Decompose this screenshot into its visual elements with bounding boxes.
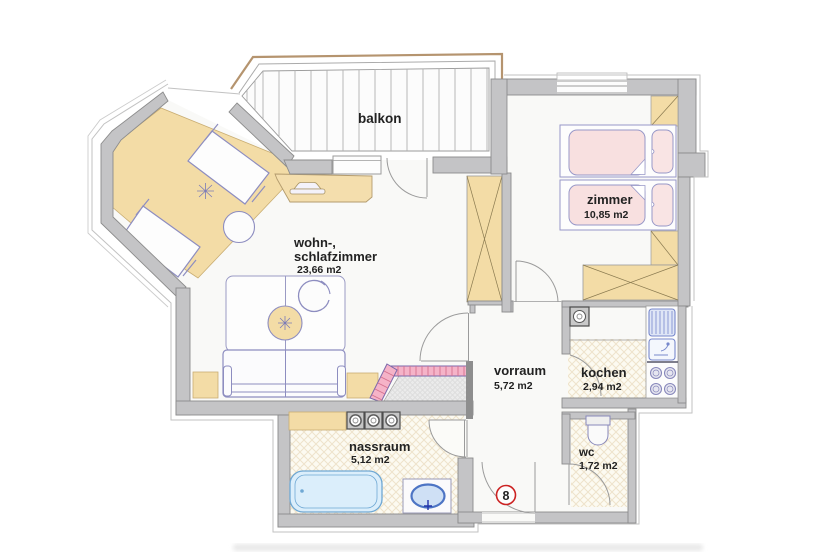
svg-text:5,12 m2: 5,12 m2	[351, 454, 390, 466]
svg-text:schlafzimmer: schlafzimmer	[294, 249, 377, 264]
svg-text:8: 8	[503, 489, 510, 503]
svg-text:nassraum: nassraum	[349, 439, 410, 454]
svg-text:zimmer: zimmer	[587, 192, 633, 207]
svg-text:2,94 m2: 2,94 m2	[583, 381, 622, 393]
svg-text:5,72 m2: 5,72 m2	[494, 380, 533, 392]
svg-text:vorraum: vorraum	[494, 363, 546, 378]
svg-text:kochen: kochen	[581, 365, 627, 380]
svg-text:wc: wc	[578, 447, 595, 459]
svg-text:10,85 m2: 10,85 m2	[584, 209, 629, 221]
svg-text:1,72 m2: 1,72 m2	[579, 460, 618, 472]
svg-text:23,66 m2: 23,66 m2	[297, 264, 342, 276]
svg-text:wohn-,: wohn-,	[293, 235, 336, 250]
svg-text:balkon: balkon	[358, 111, 402, 126]
